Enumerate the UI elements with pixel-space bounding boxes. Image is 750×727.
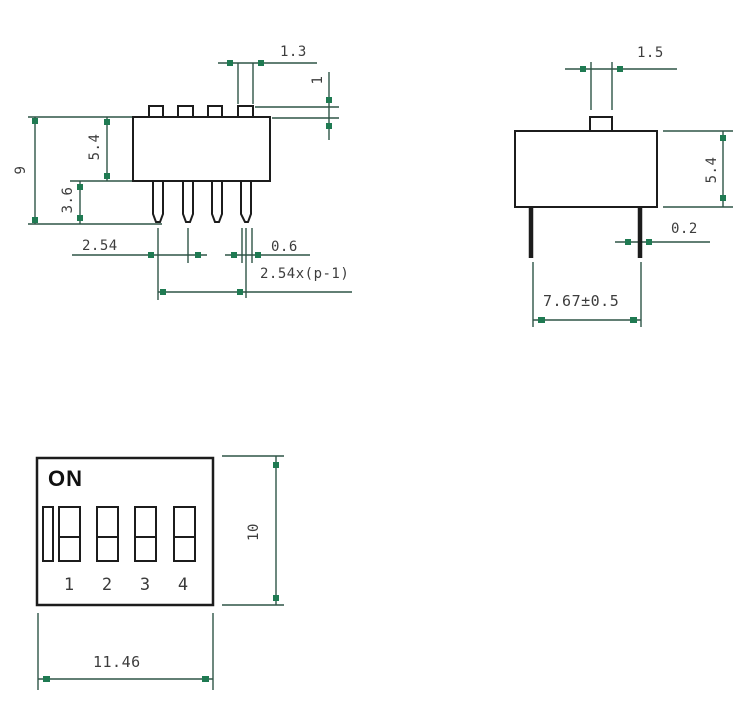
arrow-marker: [646, 239, 652, 245]
front-view-outline: [133, 106, 270, 222]
pin-3: [212, 181, 222, 222]
arrow-marker: [195, 252, 201, 258]
switch-body-front: [133, 117, 270, 181]
arrow-marker: [104, 119, 110, 125]
arrow-marker: [160, 289, 166, 295]
pin-4: [241, 181, 251, 222]
arrow-marker: [202, 676, 209, 682]
arrow-marker: [32, 118, 38, 124]
arrow-marker: [148, 252, 154, 258]
label-pin-width: 0.6: [271, 239, 298, 255]
pin-2: [183, 181, 193, 222]
switch-slot-4: [174, 507, 195, 561]
side-view: [515, 62, 733, 327]
dip-switch-technical-drawing: 1.3 1 9 5.4 3.6 2.54 0.6 2.54x(p-1) 1.5 …: [0, 0, 750, 727]
label-body-height: 5.4: [87, 127, 103, 167]
label-side-body-height: 5.4: [704, 150, 720, 190]
arrow-marker: [32, 217, 38, 223]
arrow-marker: [538, 317, 545, 323]
label-knob-width: 1.5: [637, 45, 664, 61]
label-pin-thickness: 0.2: [671, 221, 698, 237]
switch-number-2: 2: [99, 575, 115, 595]
switch-number-1: 1: [61, 575, 77, 595]
label-total-height: 9: [13, 150, 29, 190]
arrow-marker: [258, 60, 264, 66]
label-actuator-height: 1: [310, 60, 326, 100]
arrow-marker: [630, 317, 637, 323]
label-body-width: 11.46: [93, 654, 141, 670]
label-actuator-width: 1.3: [280, 44, 307, 60]
arrow-marker: [720, 135, 726, 141]
arrow-marker: [227, 60, 233, 66]
label-side-pin-span: 7.67±0.5: [543, 293, 619, 309]
arrow-marker: [43, 676, 50, 682]
side-knob: [590, 117, 612, 132]
label-pin-span-formula: 2.54x(p-1): [260, 266, 349, 282]
drawing-layer: [0, 0, 750, 727]
on-label: ON: [48, 467, 83, 491]
arrow-marker: [255, 252, 261, 258]
switch-slot-2: [97, 507, 118, 561]
arrow-marker: [237, 289, 243, 295]
label-pin-pitch: 2.54: [82, 238, 118, 254]
side-view-outline: [515, 117, 657, 258]
arrow-marker: [617, 66, 623, 72]
arrow-marker: [326, 97, 332, 103]
label-body-depth: 10: [246, 512, 262, 552]
arrow-marker: [104, 173, 110, 179]
arrow-marker: [625, 239, 631, 245]
switch-number-4: 4: [175, 575, 191, 595]
arrow-marker: [77, 184, 83, 190]
label-pin-length: 3.6: [60, 180, 76, 220]
top-view: [37, 456, 284, 690]
switch-number-3: 3: [137, 575, 153, 595]
arrow-marker: [273, 462, 279, 468]
arrow-marker: [273, 595, 279, 601]
switch-slot-3: [135, 507, 156, 561]
front-view: [28, 60, 352, 300]
arrow-marker: [720, 195, 726, 201]
switch-slot-edge: [43, 507, 53, 561]
arrow-marker: [326, 123, 332, 129]
arrow-marker: [580, 66, 586, 72]
pin-1: [153, 181, 163, 222]
arrow-marker: [77, 215, 83, 221]
switch-body-side: [515, 131, 657, 207]
arrow-marker: [231, 252, 237, 258]
switch-slot-1: [59, 507, 80, 561]
